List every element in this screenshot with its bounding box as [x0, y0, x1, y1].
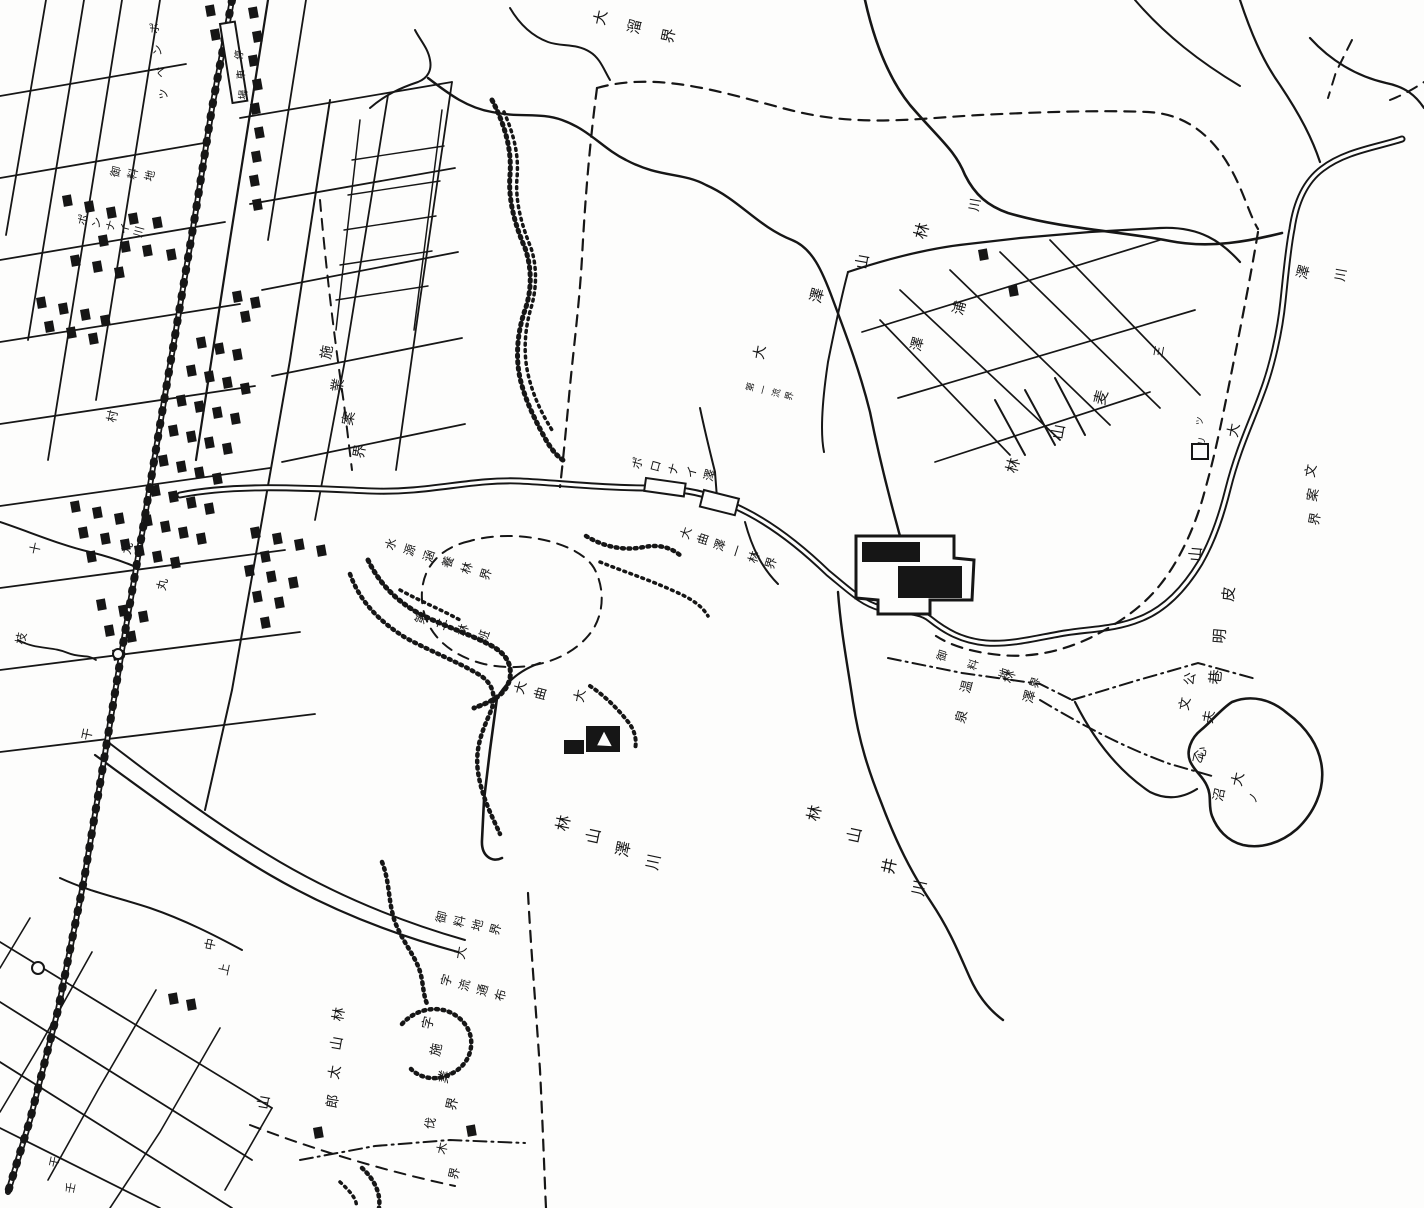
building	[70, 500, 81, 512]
building	[168, 490, 179, 502]
boundary-dashed	[528, 893, 546, 1208]
building	[170, 556, 181, 568]
river-path	[180, 139, 1402, 643]
building	[86, 550, 97, 562]
building	[88, 332, 99, 344]
map-label: 村	[104, 409, 120, 424]
map-label: 三	[1151, 344, 1167, 358]
building	[120, 240, 131, 252]
building	[80, 308, 91, 320]
building	[240, 310, 251, 322]
map-label: 澤	[806, 286, 827, 305]
map-label: 料	[965, 657, 982, 672]
map-label: 一	[758, 384, 770, 395]
map-label: 業	[329, 377, 347, 394]
street-grid-line	[340, 251, 432, 265]
building	[248, 54, 259, 66]
building	[260, 550, 271, 562]
building	[100, 532, 111, 544]
building	[249, 174, 260, 186]
map-svg: 大溜界川林山澤浦澤大第一流界麦山林三澤川大ツリ文案界山皮明巷公文夫心ポロナイ澤大…	[0, 0, 1424, 1208]
map-label: 界	[446, 1166, 462, 1181]
map-label: 一	[729, 543, 746, 559]
building	[212, 472, 223, 484]
map-label: 大	[572, 688, 589, 703]
map-label: 大	[453, 945, 470, 960]
map-label: 巷	[1206, 669, 1225, 686]
map-label: 川	[967, 197, 984, 212]
map-label: 山	[1186, 546, 1205, 563]
building	[84, 200, 95, 212]
map-label: 大	[678, 525, 695, 541]
street-grid-line	[0, 714, 315, 752]
building-block	[898, 566, 962, 598]
map-label: 山	[582, 826, 604, 846]
building	[254, 126, 265, 138]
building	[260, 616, 271, 628]
building	[978, 248, 989, 260]
map-label: 源	[402, 542, 419, 558]
map-label: 川	[131, 225, 146, 239]
building	[232, 290, 243, 302]
map-label: 界	[1307, 511, 1324, 526]
road-path	[0, 522, 138, 568]
map-label: 澤	[612, 839, 634, 859]
map-label: 山	[255, 1094, 273, 1111]
river-core	[180, 139, 1402, 643]
map-label: 涵	[421, 548, 438, 564]
building	[230, 412, 241, 424]
map-label: 麦	[1090, 388, 1111, 407]
street-grid-line	[0, 952, 92, 1112]
building	[142, 514, 153, 526]
street-grid-line	[880, 320, 1010, 455]
map-label: 林	[330, 1006, 348, 1023]
hachure-ridge	[362, 1168, 379, 1208]
hachure-ridge	[492, 100, 566, 462]
street-grid-line	[898, 310, 1195, 398]
building	[274, 596, 285, 608]
map-viewport: 大溜界川林山澤浦澤大第一流界麦山林三澤川大ツリ文案界山皮明巷公文夫心ポロナイ澤大…	[0, 0, 1424, 1208]
building	[196, 532, 207, 544]
road-path	[370, 30, 431, 108]
street-grid-line	[396, 82, 452, 470]
street-grid-line	[48, 990, 156, 1180]
map-label: 澤	[712, 537, 729, 553]
map-label: 水	[383, 536, 400, 552]
map-label: 文	[1303, 463, 1320, 478]
boundary-dashed	[320, 200, 352, 470]
map-label: 溜	[624, 17, 645, 35]
street-grid-line	[282, 424, 465, 462]
building	[194, 400, 205, 412]
map-label: 郎	[324, 1093, 342, 1110]
map-label: 十	[27, 541, 43, 556]
building	[205, 4, 216, 16]
street-grid-line	[0, 550, 285, 588]
building	[232, 348, 243, 360]
building	[196, 336, 207, 348]
map-label: 料	[124, 167, 140, 181]
map-label: 停	[232, 49, 246, 60]
hachure-ridge	[586, 536, 681, 556]
building	[272, 532, 283, 544]
road-path	[18, 640, 96, 660]
building	[158, 454, 169, 466]
building	[152, 216, 163, 228]
building	[92, 260, 103, 272]
street-grid-line	[0, 304, 240, 342]
boundary-dashed	[936, 232, 1258, 656]
station-or-bridge	[644, 478, 685, 496]
street-grid-line	[1050, 240, 1200, 395]
map-label: 界	[658, 26, 679, 44]
map-label: 案	[1305, 487, 1322, 502]
street-grid-line	[96, 0, 160, 400]
map-label: 林	[459, 560, 476, 576]
map-label: 九	[119, 541, 135, 556]
map-label: 通	[474, 983, 491, 998]
map-label: リ	[1197, 436, 1208, 447]
street-grid-line	[344, 216, 436, 230]
road-path	[700, 408, 717, 498]
map-label: ツ	[157, 88, 171, 100]
map-label: 林	[911, 221, 933, 241]
building	[204, 436, 215, 448]
road-path	[865, 0, 1282, 244]
building	[288, 576, 299, 588]
building	[126, 630, 137, 642]
road-path	[1240, 0, 1320, 162]
map-label: 澤	[908, 335, 927, 353]
map-label: 井	[878, 856, 900, 876]
boundary-dashdot	[300, 1140, 525, 1160]
map-label: 車	[234, 69, 248, 80]
building	[252, 30, 263, 42]
building	[240, 382, 251, 394]
map-label: 界	[444, 1096, 461, 1112]
street-grid-line	[336, 286, 428, 300]
building	[266, 570, 277, 582]
map-label: 業	[435, 1069, 453, 1085]
road-path	[1135, 0, 1240, 86]
map-label: 山	[843, 825, 865, 845]
building	[252, 198, 263, 210]
map-label: 字	[420, 1015, 437, 1031]
map-label: 公	[1182, 671, 1199, 686]
street-grid-line	[110, 1028, 220, 1208]
map-label: 養	[439, 554, 457, 570]
boundary-dashed	[560, 88, 597, 487]
map-label: 伐	[422, 1116, 438, 1131]
map-label: ロ	[647, 459, 664, 474]
hachure-ridge	[400, 590, 460, 620]
map-label: ナ	[665, 462, 682, 477]
map-label: 山	[1048, 423, 1068, 441]
building	[92, 506, 103, 518]
building	[114, 512, 125, 524]
building	[160, 520, 171, 532]
map-label: 大	[1229, 771, 1248, 788]
map-label: 浦	[950, 299, 969, 317]
map-label: 布	[492, 988, 509, 1003]
map-label: イ	[683, 465, 700, 480]
map-label: 太	[326, 1064, 344, 1081]
map-label: 川	[908, 878, 930, 898]
map-label: 山	[328, 1035, 346, 1052]
boundary-dashed	[422, 536, 602, 667]
station-or-bridge	[700, 490, 739, 515]
map-label: 御	[107, 165, 123, 179]
map-label: 文	[1177, 696, 1194, 711]
map-label: ツ	[1195, 416, 1206, 427]
map-label: 山	[852, 253, 872, 271]
building	[70, 254, 81, 266]
map-label: 場	[236, 89, 250, 100]
building	[204, 370, 215, 382]
map-label: 大	[512, 680, 530, 696]
building	[66, 326, 77, 338]
map-label: 第	[413, 610, 430, 626]
building	[194, 466, 205, 478]
map-label: 泉	[952, 708, 971, 725]
hachure-ridge	[340, 1182, 356, 1208]
map-label: 林	[1002, 456, 1023, 475]
map-label: 施	[318, 344, 336, 361]
map-label: ポ	[75, 213, 90, 227]
map-label: 林	[803, 803, 825, 823]
map-label: 地	[142, 169, 157, 183]
building	[186, 496, 197, 508]
map-label: ポ	[629, 456, 646, 471]
map-label: 木	[434, 1141, 450, 1156]
building	[248, 6, 259, 18]
map-label: 林	[552, 813, 574, 833]
map-label: 上	[216, 962, 232, 977]
building	[250, 526, 261, 538]
building	[222, 376, 233, 388]
building	[178, 526, 189, 538]
building	[96, 598, 107, 610]
street-grid-line	[225, 1108, 272, 1190]
street-grid-line	[414, 110, 442, 330]
building	[58, 302, 69, 314]
building-block	[862, 542, 920, 562]
building	[252, 590, 263, 602]
road-path	[428, 78, 916, 572]
street-grid-line	[995, 400, 1025, 455]
hachure-ridge	[382, 862, 428, 1006]
station-circle	[32, 962, 44, 974]
building	[106, 206, 117, 218]
map-label: 枝	[12, 631, 29, 646]
street-grid-line	[205, 100, 330, 810]
map-label: 大	[1225, 422, 1243, 439]
map-label: 温	[958, 679, 976, 695]
map-label: 澤	[1294, 263, 1313, 281]
building	[214, 342, 225, 354]
map-label: ベ	[154, 66, 168, 78]
street-grid-line	[0, 918, 30, 968]
station-circle	[113, 649, 123, 659]
map-label: 施	[428, 1042, 445, 1058]
building	[1008, 284, 1019, 296]
building	[134, 544, 145, 556]
map-label: 皮	[1219, 586, 1238, 603]
map-label: 料	[451, 914, 468, 929]
boundary-dashed	[597, 82, 1258, 229]
building	[152, 550, 163, 562]
building	[150, 484, 161, 496]
map-label: 澤	[1021, 689, 1039, 705]
map-label: 明	[1210, 628, 1229, 645]
map-label: ン	[89, 216, 104, 230]
building	[210, 28, 221, 40]
building	[186, 430, 197, 442]
building	[114, 266, 125, 278]
building	[168, 992, 179, 1004]
map-label: 御	[432, 909, 450, 924]
building	[118, 604, 129, 616]
street-grid-line	[950, 270, 1110, 425]
building	[44, 320, 55, 332]
street-grid-line	[0, 142, 210, 178]
building	[128, 212, 139, 224]
building	[176, 460, 187, 472]
hachure-ridge	[600, 562, 708, 616]
map-label: 流	[769, 387, 783, 399]
road-path	[1310, 38, 1424, 108]
building	[100, 314, 111, 326]
map-label: 林	[746, 549, 763, 565]
map-label: 川	[642, 852, 664, 872]
building	[250, 296, 261, 308]
map-label: 地	[469, 918, 486, 933]
building	[250, 102, 261, 114]
building	[186, 364, 197, 376]
building	[244, 564, 255, 576]
map-label: 流	[456, 978, 473, 993]
map-label: 沼	[1211, 787, 1228, 803]
street-grid-line	[240, 82, 452, 118]
map-label: 川	[1333, 267, 1350, 282]
map-label: 夫	[1201, 709, 1218, 724]
map-label: 中	[201, 937, 218, 952]
map-label: 界	[1027, 675, 1043, 689]
building	[222, 442, 233, 454]
building	[36, 296, 47, 308]
street-grid-line	[268, 0, 306, 240]
map-label: 曲	[695, 531, 712, 547]
map-label: 界	[478, 566, 495, 582]
street-grid-line	[352, 146, 444, 160]
boundary-dashdot	[1072, 663, 1256, 700]
map-label: 界	[783, 390, 796, 402]
map-label: 大	[590, 8, 611, 26]
map-label: 第	[743, 381, 757, 393]
map-label: 御	[934, 648, 951, 663]
building	[313, 1126, 324, 1138]
building	[98, 234, 109, 246]
building	[466, 1124, 477, 1136]
road-path	[838, 592, 1003, 1020]
map-label: ン	[151, 44, 165, 56]
map-label: ナ	[103, 219, 118, 233]
street-grid-line	[0, 632, 300, 670]
road-path	[95, 755, 458, 952]
map-label: 二	[434, 616, 451, 632]
map-label: ノ	[1246, 791, 1261, 804]
building	[168, 424, 179, 436]
map-label: 界	[351, 443, 369, 460]
map-label: 案	[339, 410, 358, 427]
map-label: 壬	[63, 1181, 78, 1194]
building	[316, 544, 327, 556]
building	[186, 998, 197, 1010]
building	[104, 624, 115, 636]
map-label: 字	[437, 972, 455, 987]
building	[166, 248, 177, 260]
road-path	[848, 228, 1240, 272]
building	[138, 610, 149, 622]
map-label: 界	[487, 922, 504, 937]
building	[142, 244, 153, 256]
road-path	[108, 742, 465, 940]
boundary-dashed	[250, 1125, 455, 1186]
building	[204, 502, 215, 514]
map-label: 大	[751, 344, 769, 361]
map-label: ポ	[148, 22, 162, 34]
map-label: 曲	[532, 686, 550, 702]
building	[251, 150, 262, 162]
road-path	[822, 272, 848, 452]
building-block	[564, 740, 584, 754]
street-grid-line	[348, 181, 440, 195]
building	[252, 78, 263, 90]
street-grid-line	[6, 0, 46, 235]
map-label: 丸	[154, 577, 170, 592]
building	[62, 194, 73, 206]
street-grid-line	[935, 392, 1150, 462]
building	[212, 406, 223, 418]
building	[176, 394, 187, 406]
map-label: 干	[79, 727, 95, 742]
building	[78, 526, 89, 538]
street-grid-line	[272, 338, 462, 376]
building	[294, 538, 305, 550]
